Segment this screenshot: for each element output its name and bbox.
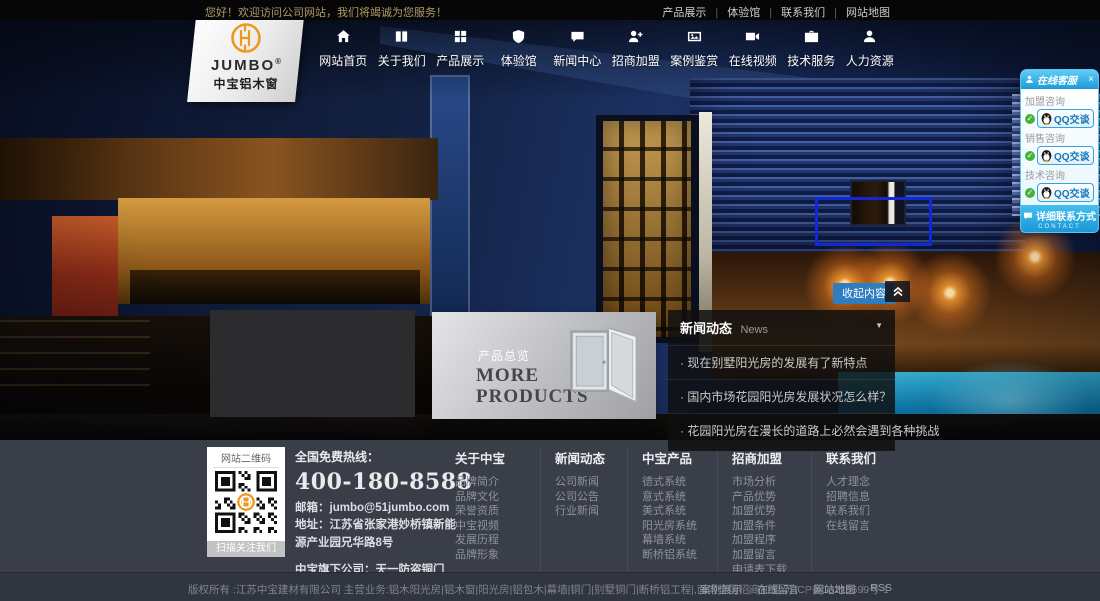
qq-penguin-icon [1040, 186, 1053, 199]
logo-reg-mark: ® [275, 57, 281, 66]
footer-link[interactable]: 市场分析 [732, 475, 811, 490]
bottombar-link[interactable]: 在线留言 [742, 582, 799, 597]
home-icon [336, 29, 351, 44]
footer-column-5: 联系我们人才理念招聘信息联系我们在线留言 [812, 448, 896, 577]
footer-link[interactable]: 意式系统 [642, 490, 717, 505]
logo-brand-text: JUMBO [211, 57, 275, 74]
user-icon [1025, 75, 1034, 84]
service-group-label: 技术咨询 [1025, 167, 1094, 182]
footer-link[interactable]: 品牌简介 [455, 475, 540, 490]
qq-chat-label: QQ交谈 [1054, 185, 1090, 200]
topbar: 您好！欢迎访问公司网站，我们将竭诚为您服务！ 产品展示体验馆联系我们网站地图 [0, 0, 1100, 20]
grid-icon [453, 29, 468, 44]
service-panel-body: 加盟咨询✓QQ交谈销售咨询✓QQ交谈技术咨询✓QQ交谈 [1021, 89, 1098, 205]
address-row: 地址：江苏省张家港妙桥镇新能源产业园兄华路8号 [295, 517, 465, 552]
briefcase-icon [804, 29, 819, 44]
nav-item-label: 网站首页 [314, 52, 373, 69]
nav-item-label: 人力资源 [841, 52, 900, 69]
service-panel-title: 在线客服 [1037, 72, 1077, 87]
page: 您好！欢迎访问公司网站，我们将竭诚为您服务！ 产品展示体验馆联系我们网站地图 [0, 0, 1100, 601]
qr-title: 网站二维码 [213, 450, 279, 468]
footer-link[interactable]: 德式系统 [642, 475, 717, 490]
qq-chat-button[interactable]: QQ交谈 [1037, 183, 1094, 202]
open-window-icon [562, 322, 648, 408]
news-item[interactable]: 花园阳光房在漫长的道路上必然会遇到各种挑战 [668, 413, 895, 447]
footer-column-3: 中宝产品德式系统意式系统美式系统阳光房系统幕墙系统断桥铝系统 [628, 448, 718, 577]
footer-link[interactable]: 阳光房系统 [642, 519, 717, 534]
qq-penguin-icon [1040, 149, 1053, 162]
footer-link[interactable]: 中宝视频 [455, 519, 540, 534]
qr-caption[interactable]: 扫描关注我们 [207, 541, 285, 557]
jumbo-emblem-icon [229, 21, 263, 55]
footer-link-columns: 关于中宝品牌简介品牌文化荣誉资质中宝视频发展历程品牌形象新闻动态公司新闻公司公告… [455, 448, 896, 577]
news-list: 现在别墅阳光房的发展有了新特点国内市场花园阳光房发展状况怎么样？花园阳光房在漫长… [668, 345, 895, 447]
news-title: 新闻动态 [680, 321, 732, 336]
nav-item-label: 技术服务 [782, 52, 841, 69]
hotline-label: 全国免费热线： [295, 448, 465, 465]
footer-link[interactable]: 联系我们 [826, 504, 896, 519]
logo-subtitle: 中宝铝木窗 [213, 75, 278, 92]
footer-column-links: 市场分析产品优势加盟优势加盟条件加盟程序加盟留言申请表下载 [732, 475, 811, 577]
bottombar-link[interactable]: 网站地图 [799, 582, 856, 597]
video-icon [745, 29, 760, 44]
footer-link[interactable]: 招聘信息 [826, 490, 896, 505]
footer-column-1: 关于中宝品牌简介品牌文化荣誉资质中宝视频发展历程品牌形象 [455, 448, 541, 577]
news-item[interactable]: 国内市场花园阳光房发展状况怎么样？ [668, 379, 895, 413]
bottombar-links: 案例展示在线留言网站地图RSS [700, 582, 892, 597]
chat-bubble-icon [1023, 211, 1033, 221]
news-subtitle: News [740, 324, 768, 336]
main-nav: 网站首页关于我们产品展示体验馆新闻中心招商加盟案例鉴赏在线视频技术服务人力资源 [314, 29, 899, 69]
close-icon[interactable]: × [1088, 75, 1094, 85]
footer: 网站二维码 扫描关注我们 全国免费热线： 400-180-8588 邮箱：jum… [0, 440, 1100, 572]
qq-chat-label: QQ交谈 [1054, 148, 1090, 163]
footer-column-2: 新闻动态公司新闻公司公告行业新闻 [541, 448, 628, 577]
email-row: 邮箱：jumbo@51jumbo.com [295, 500, 465, 517]
nav-item-label: 体验馆 [490, 52, 549, 69]
shield-icon [511, 29, 526, 44]
product-dark-panel [210, 310, 415, 417]
hotline-number: 400-180-8588 [295, 469, 465, 495]
topbar-link[interactable]: 网站地图 [825, 4, 890, 20]
qr-card: 网站二维码 扫描关注我们 [207, 447, 285, 557]
topbar-link[interactable]: 联系我们 [760, 4, 825, 20]
footer-link[interactable]: 在线留言 [826, 519, 896, 534]
footer-link[interactable]: 断桥铝系统 [642, 548, 717, 563]
nav-item-label: 在线视频 [724, 52, 783, 69]
user-icon [862, 29, 877, 44]
footer-link[interactable]: 发展历程 [455, 533, 540, 548]
hero-banner: JUMBO® 中宝铝木窗 网站首页关于我们产品展示体验馆新闻中心招商加盟案例鉴赏… [0, 20, 1100, 440]
address-label: 地址： [295, 519, 330, 531]
more-products-card[interactable]: 产品总览 MORE PRODUCTS [432, 312, 656, 419]
qq-penguin-icon [1040, 112, 1053, 125]
news-item[interactable]: 现在别墅阳光房的发展有了新特点 [668, 345, 895, 379]
footer-link[interactable]: 公司新闻 [555, 475, 627, 490]
logo-inner: JUMBO® 中宝铝木窗 [192, 8, 300, 102]
chat-icon [570, 29, 585, 44]
dropdown-icon[interactable]: ▼ [875, 321, 883, 330]
nav-item-label: 产品展示 [431, 52, 490, 69]
footer-column-title: 关于中宝 [455, 448, 540, 467]
news-header: ▼ 新闻动态 News [668, 310, 895, 345]
nav-item-franchise[interactable]: 招商加盟 [607, 29, 666, 69]
contact-details-label: 详细联系方式 [1036, 208, 1096, 223]
qr-code [215, 471, 277, 533]
topbar-link[interactable]: 体验馆 [706, 4, 760, 20]
online-status-icon: ✓ [1025, 151, 1035, 161]
contact-details-sub: CONTACT [1021, 224, 1098, 230]
logo[interactable]: JUMBO® 中宝铝木窗 [187, 8, 305, 102]
footer-column-links: 人才理念招聘信息联系我们在线留言 [826, 475, 896, 533]
service-group-row: ✓QQ交谈 [1025, 146, 1094, 165]
footer-link[interactable]: 行业新闻 [555, 504, 627, 519]
contact-details-button[interactable]: 详细联系方式 CONTACT [1021, 205, 1098, 232]
qq-chat-button[interactable]: QQ交谈 [1037, 109, 1094, 128]
nav-item-cases[interactable]: 案例鉴赏 [665, 29, 724, 69]
footer-link[interactable]: 产品优势 [732, 490, 811, 505]
service-panel-header: 在线客服 × [1021, 70, 1098, 89]
footer-column-4: 招商加盟市场分析产品优势加盟优势加盟条件加盟程序加盟留言申请表下载 [718, 448, 812, 577]
contact-details-row: 详细联系方式 [1021, 208, 1098, 223]
footer-link[interactable]: 品牌形象 [455, 548, 540, 563]
qq-chat-label: QQ交谈 [1054, 111, 1090, 126]
nav-item-experience[interactable]: 体验馆 [490, 29, 549, 69]
products-card-title: 产品总览 [478, 347, 530, 364]
footer-link[interactable]: 加盟程序 [732, 533, 811, 548]
qq-chat-button[interactable]: QQ交谈 [1037, 146, 1094, 165]
collapse-icon-button[interactable] [885, 281, 910, 302]
service-group-label: 加盟咨询 [1025, 93, 1094, 108]
online-status-icon: ✓ [1025, 114, 1035, 124]
nav-item-home[interactable]: 网站首页 [314, 29, 373, 69]
footer-link[interactable]: 荣誉资质 [455, 504, 540, 519]
nav-item-video[interactable]: 在线视频 [724, 29, 783, 69]
service-group-label: 销售咨询 [1025, 130, 1094, 145]
gallery-icon [687, 29, 702, 44]
nav-item-label: 关于我们 [373, 52, 432, 69]
welcome-message: 您好！欢迎访问公司网站，我们将竭诚为您服务！ [205, 4, 447, 20]
topbar-links: 产品展示体验馆联系我们网站地图 [662, 4, 890, 20]
footer-column-title: 新闻动态 [555, 448, 627, 467]
user-plus-icon [628, 29, 643, 44]
online-status-icon: ✓ [1025, 188, 1035, 198]
footer-contact: 全国免费热线： 400-180-8588 邮箱：jumbo@51jumbo.co… [295, 448, 465, 577]
nav-item-label: 招商加盟 [607, 52, 666, 69]
nav-item-about[interactable]: 关于我们 [373, 29, 432, 69]
footer-link[interactable]: 加盟留言 [732, 548, 811, 563]
bottombar-link[interactable]: RSS [856, 582, 892, 597]
nav-item-label: 新闻中心 [548, 52, 607, 69]
online-service-panel: 在线客服 × 加盟咨询✓QQ交谈销售咨询✓QQ交谈技术咨询✓QQ交谈 详细联系方… [1021, 70, 1098, 232]
hero-highlight-box [815, 197, 932, 246]
email-label: 邮箱： [295, 502, 330, 514]
nav-item-label: 案例鉴赏 [665, 52, 724, 69]
nav-item-tech[interactable]: 技术服务 [782, 29, 841, 69]
footer-link[interactable]: 公司公告 [555, 490, 627, 505]
footer-link[interactable]: 加盟优势 [732, 504, 811, 519]
nav-item-products[interactable]: 产品展示 [431, 29, 490, 69]
service-group-row: ✓QQ交谈 [1025, 183, 1094, 202]
bottombar: 版权所有 :江苏中宝建材有限公司 主营业务:铝木阳光房|铝木窗|阳光房|铝包木|… [0, 572, 1100, 601]
footer-column-links: 公司新闻公司公告行业新闻 [555, 475, 627, 519]
footer-link[interactable]: 幕墙系统 [642, 533, 717, 548]
double-chevron-up-icon [892, 285, 904, 298]
footer-link[interactable]: 品牌文化 [455, 490, 540, 505]
logo-brand: JUMBO® [211, 58, 281, 73]
news-panel: ▼ 新闻动态 News 现在别墅阳光房的发展有了新特点国内市场花园阳光房发展状况… [668, 310, 895, 451]
service-group-row: ✓QQ交谈 [1025, 109, 1094, 128]
footer-link[interactable]: 加盟条件 [732, 519, 811, 534]
bottombar-link[interactable]: 案例展示 [700, 582, 742, 597]
email-value[interactable]: jumbo@51jumbo.com [330, 502, 450, 514]
book-icon [394, 29, 409, 44]
topbar-link[interactable]: 产品展示 [662, 4, 706, 20]
footer-column-links: 品牌简介品牌文化荣誉资质中宝视频发展历程品牌形象 [455, 475, 540, 563]
footer-column-links: 德式系统意式系统美式系统阳光房系统幕墙系统断桥铝系统 [642, 475, 717, 563]
nav-item-news[interactable]: 新闻中心 [548, 29, 607, 69]
nav-item-hr[interactable]: 人力资源 [841, 29, 900, 69]
footer-link[interactable]: 人才理念 [826, 475, 896, 490]
footer-link[interactable]: 美式系统 [642, 504, 717, 519]
